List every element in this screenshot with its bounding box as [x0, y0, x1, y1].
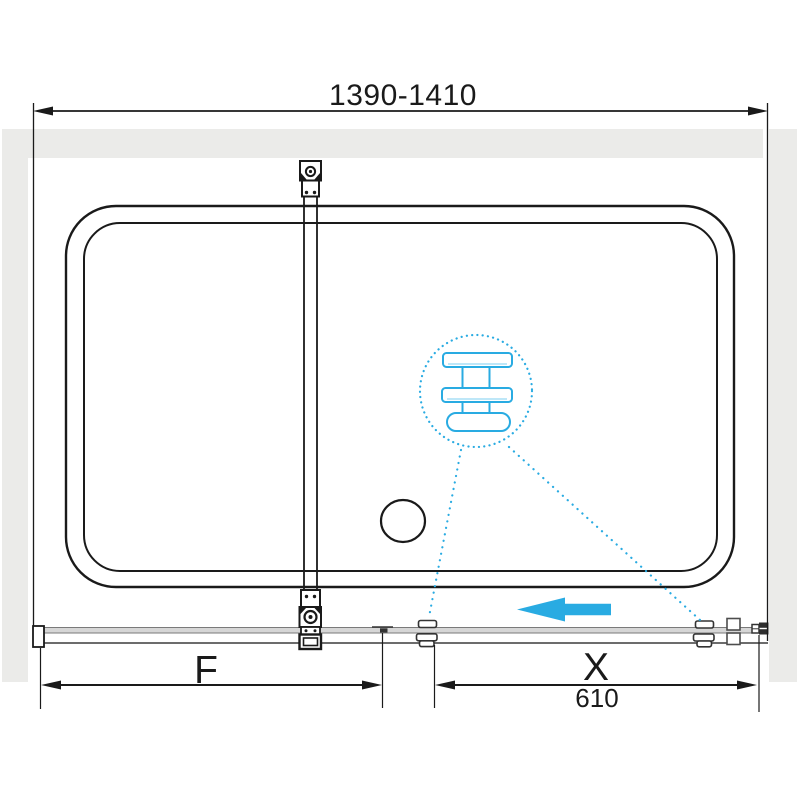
walls	[2, 129, 797, 682]
screw-dot	[305, 629, 308, 632]
glass-edge-clip	[380, 628, 388, 632]
leader-line-right	[509, 447, 700, 620]
wall-top	[2, 129, 763, 158]
detail-bar-bottom	[447, 413, 510, 431]
shower-tray	[66, 206, 734, 587]
screw-dot	[313, 595, 316, 598]
bottom-rail	[33, 626, 768, 647]
detail-bar-top	[443, 353, 512, 367]
roller-top	[696, 621, 714, 628]
guide-block-top	[727, 619, 740, 631]
roller-top	[419, 621, 437, 628]
roller-body	[694, 634, 715, 641]
fixed-panel-label: F	[194, 649, 218, 692]
arrowhead-right	[362, 681, 382, 690]
dimension-overall-width: 1390-1410	[33, 79, 768, 641]
overall-width-label: 1390-1410	[329, 79, 477, 112]
sliding-door-width-value: 610	[575, 683, 618, 713]
fixed-panel-post	[304, 196, 317, 590]
bottom-bracket-clamp	[301, 590, 320, 607]
arrowhead-left	[435, 681, 455, 690]
diagram-canvas: 1390-1410 F X 610	[0, 0, 800, 800]
dimension-fixed-panel: F	[41, 633, 383, 709]
arrowhead-right	[748, 107, 768, 116]
bottom-bracket-foot-inner	[304, 638, 318, 646]
screw-dot	[314, 629, 317, 632]
roller-body	[417, 634, 438, 641]
arrowhead-left	[41, 681, 61, 690]
top-mount-bracket	[300, 161, 321, 197]
guide-block-bottom	[727, 633, 740, 645]
wall-left	[2, 129, 28, 682]
slide-left-arrow-icon	[517, 598, 611, 622]
rail-track	[44, 628, 753, 634]
bottom-roller-axle	[309, 615, 313, 619]
leader-line-left	[429, 450, 461, 617]
roller-base	[420, 641, 435, 647]
roller-base	[697, 641, 712, 647]
screw-dot	[305, 595, 308, 598]
screw-dot	[313, 191, 316, 194]
bottom-roller-bracket	[300, 590, 322, 649]
top-roller-axle	[309, 170, 312, 173]
towel-bar-zoom-detail-icon	[420, 335, 700, 620]
rail-wall-bracket-right	[752, 623, 769, 635]
rail-left-end-cap	[33, 626, 44, 647]
screw-dot	[305, 191, 308, 194]
arrowhead-right	[737, 681, 757, 690]
door-roller-left	[417, 621, 438, 647]
detail-bar-middle	[442, 388, 512, 402]
top-bracket-clamp	[302, 181, 319, 197]
drain-circle-icon	[381, 500, 425, 542]
wall-right	[769, 129, 797, 682]
door-roller-right	[694, 621, 715, 647]
dimension-diagram: 1390-1410 F X 610	[0, 0, 800, 800]
arrowhead-left	[33, 107, 53, 116]
